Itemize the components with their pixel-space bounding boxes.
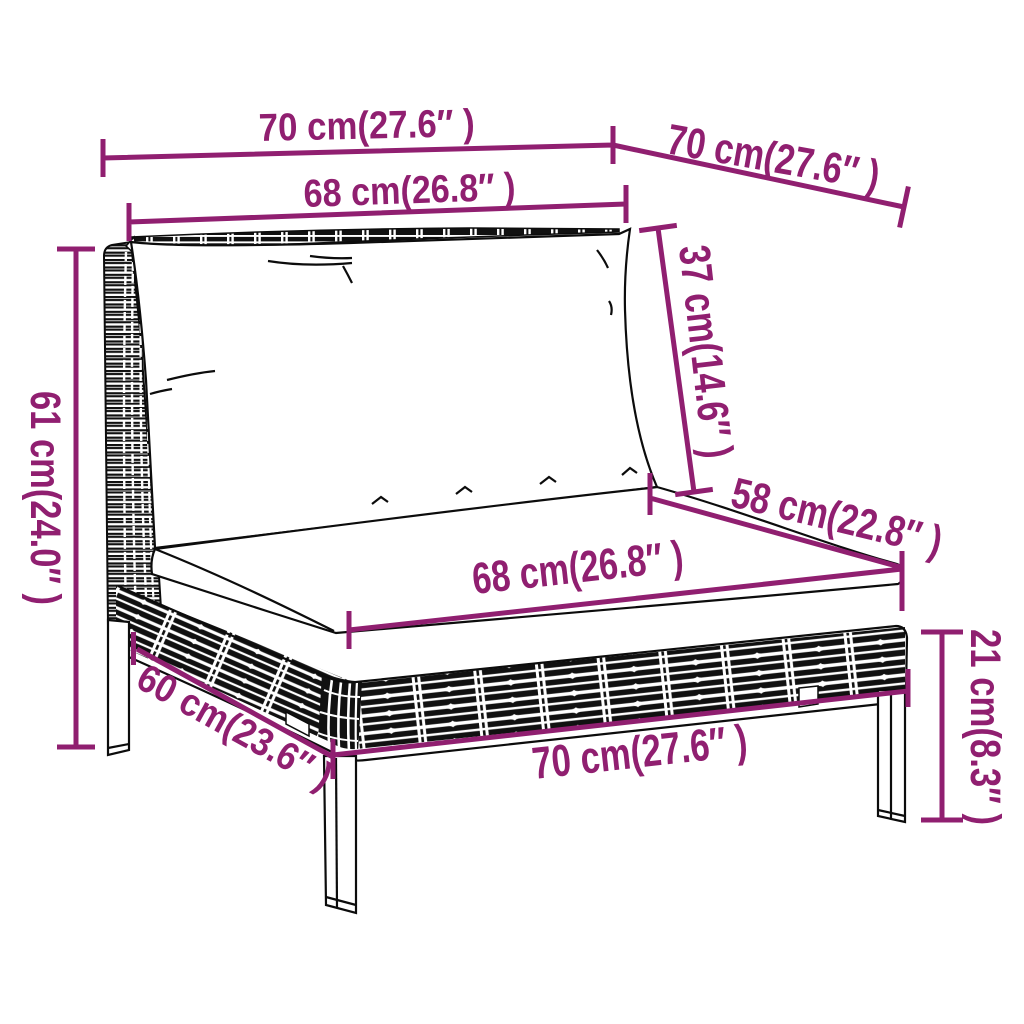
svg-text:21 cm(8.3″ ): 21 cm(8.3″ ) — [961, 629, 1008, 825]
svg-text:61 cm(24.0″ ): 61 cm(24.0″ ) — [21, 391, 68, 605]
svg-text:70 cm(27.6″ ): 70 cm(27.6″ ) — [258, 102, 475, 150]
svg-text:68 cm(26.8″ ): 68 cm(26.8″ ) — [303, 166, 516, 216]
